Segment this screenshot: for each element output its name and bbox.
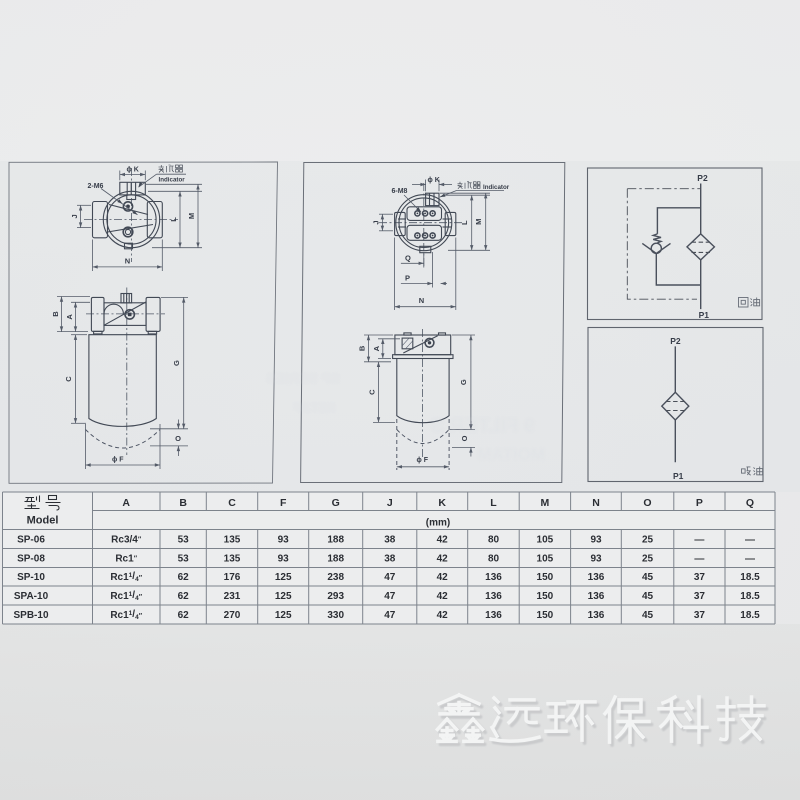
svg-text:188: 188	[327, 554, 344, 565]
svg-text:MOITAM: MOITAM	[477, 445, 545, 464]
svg-text:188: 188	[327, 535, 344, 546]
svg-text:C: C	[368, 389, 377, 395]
svg-text:135: 135	[224, 535, 241, 546]
svg-text:293: 293	[327, 591, 344, 602]
svg-text:231: 231	[224, 591, 241, 602]
svg-text:18.5: 18.5	[740, 610, 760, 621]
svg-text:SP-10: SP-10	[17, 572, 45, 583]
svg-text:—: —	[745, 554, 755, 565]
svg-text:18.5: 18.5	[740, 572, 760, 583]
svg-text:53: 53	[178, 535, 190, 546]
svg-text:G: G	[172, 360, 181, 366]
svg-text:L: L	[490, 497, 497, 509]
svg-text:18.5: 18.5	[740, 591, 760, 602]
svg-text:—: —	[694, 554, 704, 565]
svg-text:42: 42	[437, 535, 449, 546]
svg-text:37: 37	[694, 610, 706, 621]
svg-text:93: 93	[590, 535, 602, 546]
svg-text:330: 330	[327, 610, 344, 621]
svg-text:45: 45	[642, 591, 654, 602]
svg-text:136: 136	[588, 591, 605, 602]
svg-text:K: K	[438, 497, 446, 509]
svg-text:125: 125	[275, 610, 292, 621]
svg-text:—: —	[694, 535, 704, 546]
svg-text:B: B	[179, 497, 187, 509]
svg-text:A: A	[65, 314, 74, 320]
svg-text:A: A	[122, 497, 130, 509]
svg-text:J: J	[372, 220, 381, 224]
svg-text:J: J	[387, 497, 393, 509]
svg-text:25: 25	[642, 535, 654, 546]
svg-text:—: —	[745, 535, 755, 546]
svg-text:SP-06: SP-06	[17, 535, 45, 546]
svg-text:125: 125	[275, 572, 292, 583]
svg-text:P1: P1	[699, 310, 710, 320]
svg-text:SPA-10: SPA-10	[14, 591, 49, 602]
svg-text:M: M	[541, 497, 550, 509]
svg-text:C: C	[64, 376, 73, 382]
svg-text:Indicator: Indicator	[159, 177, 186, 184]
svg-text:ϕ K: ϕ K	[127, 167, 139, 174]
svg-text:Rc3/4″: Rc3/4″	[111, 535, 142, 546]
svg-text:SP-08: SP-08	[17, 554, 45, 565]
svg-text:53: 53	[178, 554, 190, 565]
svg-text:47: 47	[384, 591, 396, 602]
svg-text:J: J	[70, 214, 79, 218]
svg-text:45: 45	[642, 610, 654, 621]
svg-text:G: G	[459, 379, 468, 385]
svg-text:80: 80	[488, 554, 500, 565]
svg-text:O: O	[643, 497, 651, 509]
svg-text:G: G	[332, 497, 340, 509]
svg-text:136: 136	[485, 591, 502, 602]
svg-text:125: 125	[275, 591, 292, 602]
svg-text:2-M6: 2-M6	[88, 183, 104, 190]
svg-text:6-M8: 6-M8	[392, 188, 408, 195]
svg-text:136: 136	[485, 572, 502, 583]
svg-text:62: 62	[178, 591, 190, 602]
svg-text:P: P	[405, 274, 410, 283]
svg-text:B: B	[358, 345, 367, 351]
svg-text:N: N	[592, 497, 600, 509]
svg-text:SP SERIES: SP SERIES	[266, 370, 340, 386]
svg-text:42: 42	[437, 572, 449, 583]
svg-text:80: 80	[488, 535, 500, 546]
svg-text:P1: P1	[673, 471, 684, 481]
svg-text:C: C	[228, 497, 236, 509]
svg-text:42: 42	[437, 591, 449, 602]
svg-text:L: L	[169, 217, 178, 222]
svg-text:150: 150	[537, 591, 554, 602]
svg-text:25: 25	[642, 554, 654, 565]
svg-text:N: N	[125, 257, 130, 266]
svg-text:ϕ K: ϕ K	[428, 177, 440, 184]
svg-text:135: 135	[224, 554, 241, 565]
svg-text:42: 42	[437, 554, 449, 565]
svg-text:45: 45	[642, 572, 654, 583]
svg-text:47: 47	[384, 572, 396, 583]
svg-text:238: 238	[327, 572, 344, 583]
svg-text:105: 105	[537, 535, 554, 546]
svg-text:Q: Q	[746, 497, 754, 509]
svg-text:N: N	[419, 296, 424, 305]
svg-text:37: 37	[694, 591, 706, 602]
svg-text:SPB-10: SPB-10	[13, 610, 48, 621]
svg-text:Indicator: Indicator	[483, 184, 510, 191]
svg-text:F: F	[280, 497, 287, 509]
svg-text:93: 93	[278, 554, 290, 565]
svg-text:136: 136	[485, 610, 502, 621]
svg-text:Q: Q	[405, 253, 411, 262]
svg-text:RETJIF: RETJIF	[294, 401, 335, 415]
svg-text:O: O	[175, 434, 181, 443]
svg-text:P2: P2	[697, 173, 708, 183]
svg-text:176: 176	[224, 572, 241, 583]
svg-text:62: 62	[178, 572, 190, 583]
svg-text:105: 105	[537, 554, 554, 565]
svg-text:(mm): (mm)	[426, 518, 450, 529]
svg-text:M: M	[474, 219, 483, 225]
svg-text:150: 150	[537, 610, 554, 621]
svg-text:150: 150	[537, 572, 554, 583]
svg-text:42: 42	[437, 610, 449, 621]
svg-text:Model: Model	[27, 515, 59, 527]
svg-text:L: L	[460, 220, 469, 225]
svg-text:93: 93	[278, 535, 290, 546]
svg-text:P2: P2	[670, 336, 681, 346]
svg-text:B: B	[51, 311, 60, 317]
svg-text:38: 38	[384, 554, 396, 565]
svg-text:9 FILTER S: 9 FILTER S	[431, 415, 535, 437]
svg-text:ϕ F: ϕ F	[112, 457, 124, 464]
svg-text:M: M	[187, 213, 196, 219]
svg-text:62: 62	[178, 610, 190, 621]
svg-text:37: 37	[694, 572, 706, 583]
svg-text:47: 47	[384, 610, 396, 621]
svg-text:ϕ F: ϕ F	[417, 457, 429, 464]
svg-text:93: 93	[590, 554, 602, 565]
svg-text:A: A	[372, 345, 381, 351]
svg-text:270: 270	[224, 610, 241, 621]
svg-text:136: 136	[588, 572, 605, 583]
svg-text:P: P	[696, 497, 703, 509]
svg-text:38: 38	[384, 535, 396, 546]
svg-text:136: 136	[588, 610, 605, 621]
